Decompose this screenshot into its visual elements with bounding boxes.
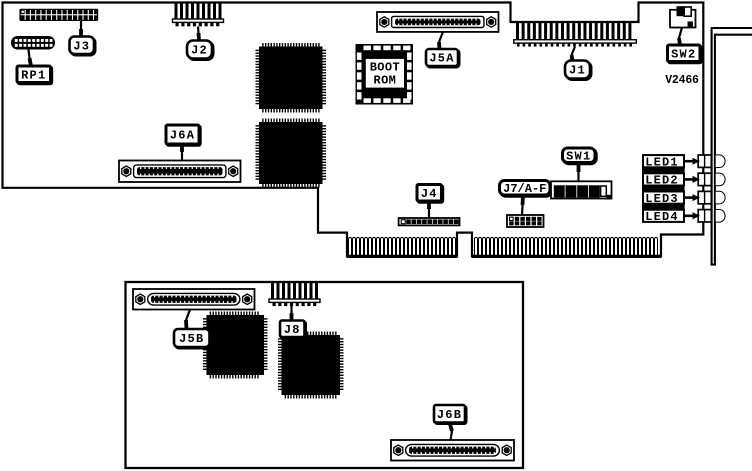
svg-text:ROM: ROM [373,74,396,88]
svg-text:J6A: J6A [170,129,195,143]
svg-text:V2466: V2466 [665,74,699,87]
svg-text:LED4: LED4 [645,210,679,224]
svg-text:J6B: J6B [437,408,462,422]
svg-text:LED1: LED1 [645,156,679,170]
svg-text:J1: J1 [569,64,586,78]
svg-text:RP1: RP1 [21,68,46,82]
svg-text:LED2: LED2 [645,174,679,188]
svg-text:SW1: SW1 [566,149,591,163]
svg-text:LED3: LED3 [645,192,679,206]
svg-text:J2: J2 [191,44,208,58]
svg-text:J5B: J5B [179,332,204,346]
svg-text:J5A: J5A [429,52,454,66]
svg-text:J7/A-F: J7/A-F [503,182,546,196]
svg-text:BOOT: BOOT [370,61,400,75]
svg-text:SW2: SW2 [671,47,696,61]
svg-text:J4: J4 [421,187,438,201]
svg-text:J8: J8 [284,323,301,337]
svg-text:J3: J3 [73,39,90,53]
